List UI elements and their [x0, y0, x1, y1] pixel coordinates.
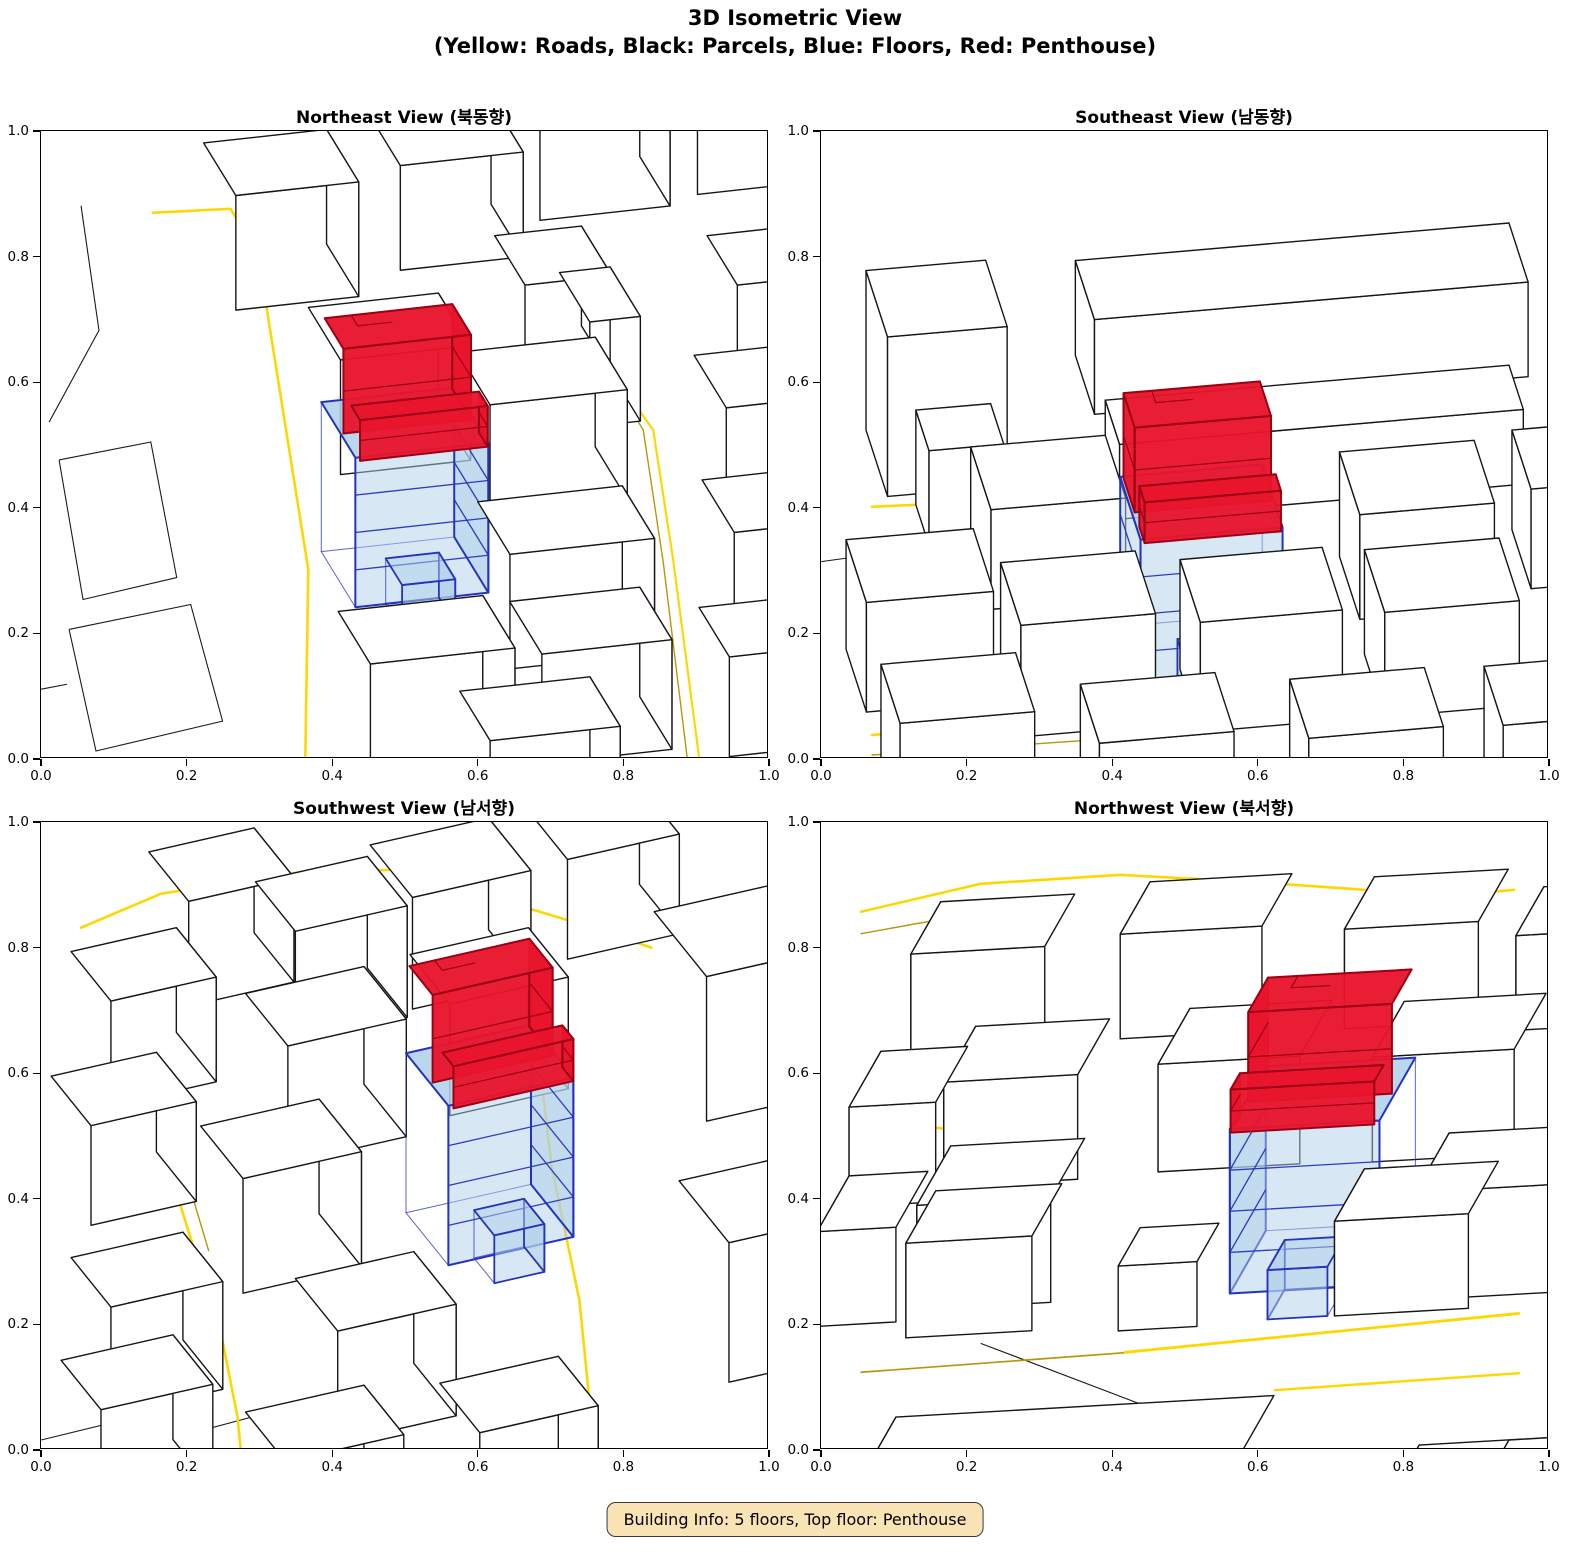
- y-axis-tick-mark: [813, 633, 820, 634]
- scene-southeast: [821, 131, 1547, 757]
- figure-title: 3D Isometric View: [0, 6, 1590, 30]
- x-axis-tick-mark: [966, 1450, 967, 1457]
- subplot-title-southwest: Southwest View (남서향): [41, 794, 767, 819]
- x-axis-tick-mark: [332, 759, 333, 766]
- building-info-badge: Building Info: 5 floors, Top floor: Pent…: [607, 1502, 984, 1537]
- y-axis-tick-mark: [33, 507, 40, 508]
- x-axis-tick-mark: [186, 1450, 187, 1457]
- y-axis-tick-label: 0.4: [0, 1191, 29, 1207]
- x-axis-tick-label: 0.2: [169, 768, 205, 784]
- subplot-title-southeast: Southeast View (남동향): [821, 103, 1547, 128]
- y-axis-tick-label: 0.4: [771, 1191, 809, 1207]
- y-axis-tick-mark: [33, 1449, 40, 1450]
- y-axis-tick-label: 0.6: [771, 374, 809, 390]
- y-axis-tick-label: 0.2: [771, 625, 809, 641]
- x-axis-tick-label: 0.8: [1385, 768, 1421, 784]
- y-axis-tick-label: 1.0: [771, 814, 809, 830]
- x-axis-tick-mark: [1403, 759, 1404, 766]
- y-axis-tick-mark: [33, 1324, 40, 1325]
- x-axis-tick-mark: [332, 1450, 333, 1457]
- x-axis-tick-mark: [820, 759, 821, 766]
- y-axis-tick-label: 0.2: [771, 1316, 809, 1332]
- y-axis-tick-mark: [33, 633, 40, 634]
- figure: 3D Isometric View (Yellow: Roads, Black:…: [0, 0, 1590, 1560]
- scene-southwest: [41, 822, 767, 1448]
- x-axis-tick-label: 0.8: [605, 1459, 641, 1475]
- x-axis-tick-mark: [477, 1450, 478, 1457]
- y-axis-tick-label: 0.6: [0, 374, 29, 390]
- x-axis-tick-mark: [623, 759, 624, 766]
- x-axis-tick-label: 0.0: [803, 768, 839, 784]
- x-axis-tick-label: 0.2: [949, 768, 985, 784]
- y-axis-tick-label: 1.0: [0, 814, 29, 830]
- y-axis-tick-label: 0.2: [0, 1316, 29, 1332]
- x-axis-tick-mark: [623, 1450, 624, 1457]
- x-axis-tick-mark: [477, 759, 478, 766]
- y-axis-tick-mark: [33, 821, 40, 822]
- y-axis-tick-mark: [813, 758, 820, 759]
- x-axis-tick-mark: [1112, 759, 1113, 766]
- y-axis-tick-label: 0.8: [771, 249, 809, 265]
- y-axis-tick-label: 0.8: [0, 940, 29, 956]
- x-axis-tick-label: 0.6: [1240, 768, 1276, 784]
- x-axis-tick-label: 0.4: [1094, 1459, 1130, 1475]
- x-axis-tick-label: 1.0: [751, 1459, 787, 1475]
- y-axis-tick-label: 0.6: [0, 1065, 29, 1081]
- y-axis-tick-label: 1.0: [0, 123, 29, 139]
- y-axis-tick-label: 0.0: [0, 751, 29, 767]
- y-axis-tick-mark: [813, 821, 820, 822]
- x-axis-tick-label: 0.2: [169, 1459, 205, 1475]
- y-axis-tick-mark: [33, 758, 40, 759]
- x-axis-tick-label: 0.0: [23, 768, 59, 784]
- scene-northeast: [41, 131, 767, 757]
- scene-northwest: [821, 822, 1547, 1448]
- y-axis-tick-mark: [33, 382, 40, 383]
- x-axis-tick-label: 0.2: [949, 1459, 985, 1475]
- subplot-title-northeast: Northeast View (북동향): [41, 103, 767, 128]
- y-axis-tick-label: 0.0: [0, 1442, 29, 1458]
- figure-subtitle: (Yellow: Roads, Black: Parcels, Blue: Fl…: [0, 34, 1590, 58]
- x-axis-tick-label: 0.8: [605, 768, 641, 784]
- x-axis-tick-label: 1.0: [1531, 768, 1567, 784]
- x-axis-tick-mark: [1548, 1450, 1549, 1457]
- y-axis-tick-mark: [813, 507, 820, 508]
- y-axis-tick-mark: [813, 1073, 820, 1074]
- x-axis-tick-label: 0.8: [1385, 1459, 1421, 1475]
- x-axis-tick-mark: [40, 759, 41, 766]
- x-axis-tick-label: 0.6: [1240, 1459, 1276, 1475]
- subplot-title-northwest: Northwest View (북서향): [821, 794, 1547, 819]
- x-axis-tick-label: 0.4: [1094, 768, 1130, 784]
- x-axis-tick-mark: [186, 759, 187, 766]
- subplot-southwest: Southwest View (남서향) 0.01.00.20.80.40.60…: [40, 821, 768, 1449]
- y-axis-tick-label: 1.0: [771, 123, 809, 139]
- y-axis-tick-mark: [813, 1198, 820, 1199]
- y-axis-tick-label: 0.8: [771, 940, 809, 956]
- x-axis-tick-mark: [966, 759, 967, 766]
- x-axis-tick-mark: [820, 1450, 821, 1457]
- subplot-northeast: Northeast View (북동향) 0.01.00.20.80.40.60…: [40, 130, 768, 758]
- y-axis-tick-mark: [33, 130, 40, 131]
- x-axis-tick-mark: [1257, 1450, 1258, 1457]
- y-axis-tick-mark: [813, 256, 820, 257]
- y-axis-tick-mark: [33, 947, 40, 948]
- y-axis-tick-label: 0.6: [771, 1065, 809, 1081]
- y-axis-tick-label: 0.4: [0, 500, 29, 516]
- y-axis-tick-mark: [33, 1073, 40, 1074]
- x-axis-tick-mark: [1257, 759, 1258, 766]
- y-axis-tick-label: 0.4: [771, 500, 809, 516]
- x-axis-tick-mark: [40, 1450, 41, 1457]
- subplot-southeast: Southeast View (남동향) 0.01.00.20.80.40.60…: [820, 130, 1548, 758]
- x-axis-tick-label: 1.0: [751, 768, 787, 784]
- y-axis-tick-mark: [813, 130, 820, 131]
- x-axis-tick-label: 0.4: [314, 768, 350, 784]
- x-axis-tick-label: 0.6: [460, 1459, 496, 1475]
- y-axis-tick-mark: [33, 1198, 40, 1199]
- x-axis-tick-label: 1.0: [1531, 1459, 1567, 1475]
- x-axis-tick-mark: [768, 1450, 769, 1457]
- subplot-northwest: Northwest View (북서향) 0.01.00.20.80.40.60…: [820, 821, 1548, 1449]
- x-axis-tick-label: 0.4: [314, 1459, 350, 1475]
- x-axis-tick-label: 0.0: [803, 1459, 839, 1475]
- x-axis-tick-mark: [1112, 1450, 1113, 1457]
- y-axis-tick-label: 0.8: [0, 249, 29, 265]
- x-axis-tick-mark: [768, 759, 769, 766]
- y-axis-tick-label: 0.0: [771, 751, 809, 767]
- y-axis-tick-mark: [813, 1449, 820, 1450]
- x-axis-tick-mark: [1403, 1450, 1404, 1457]
- y-axis-tick-mark: [813, 1324, 820, 1325]
- y-axis-tick-label: 0.0: [771, 1442, 809, 1458]
- y-axis-tick-mark: [33, 256, 40, 257]
- y-axis-tick-mark: [813, 382, 820, 383]
- y-axis-tick-label: 0.2: [0, 625, 29, 641]
- x-axis-tick-mark: [1548, 759, 1549, 766]
- x-axis-tick-label: 0.6: [460, 768, 496, 784]
- x-axis-tick-label: 0.0: [23, 1459, 59, 1475]
- y-axis-tick-mark: [813, 947, 820, 948]
